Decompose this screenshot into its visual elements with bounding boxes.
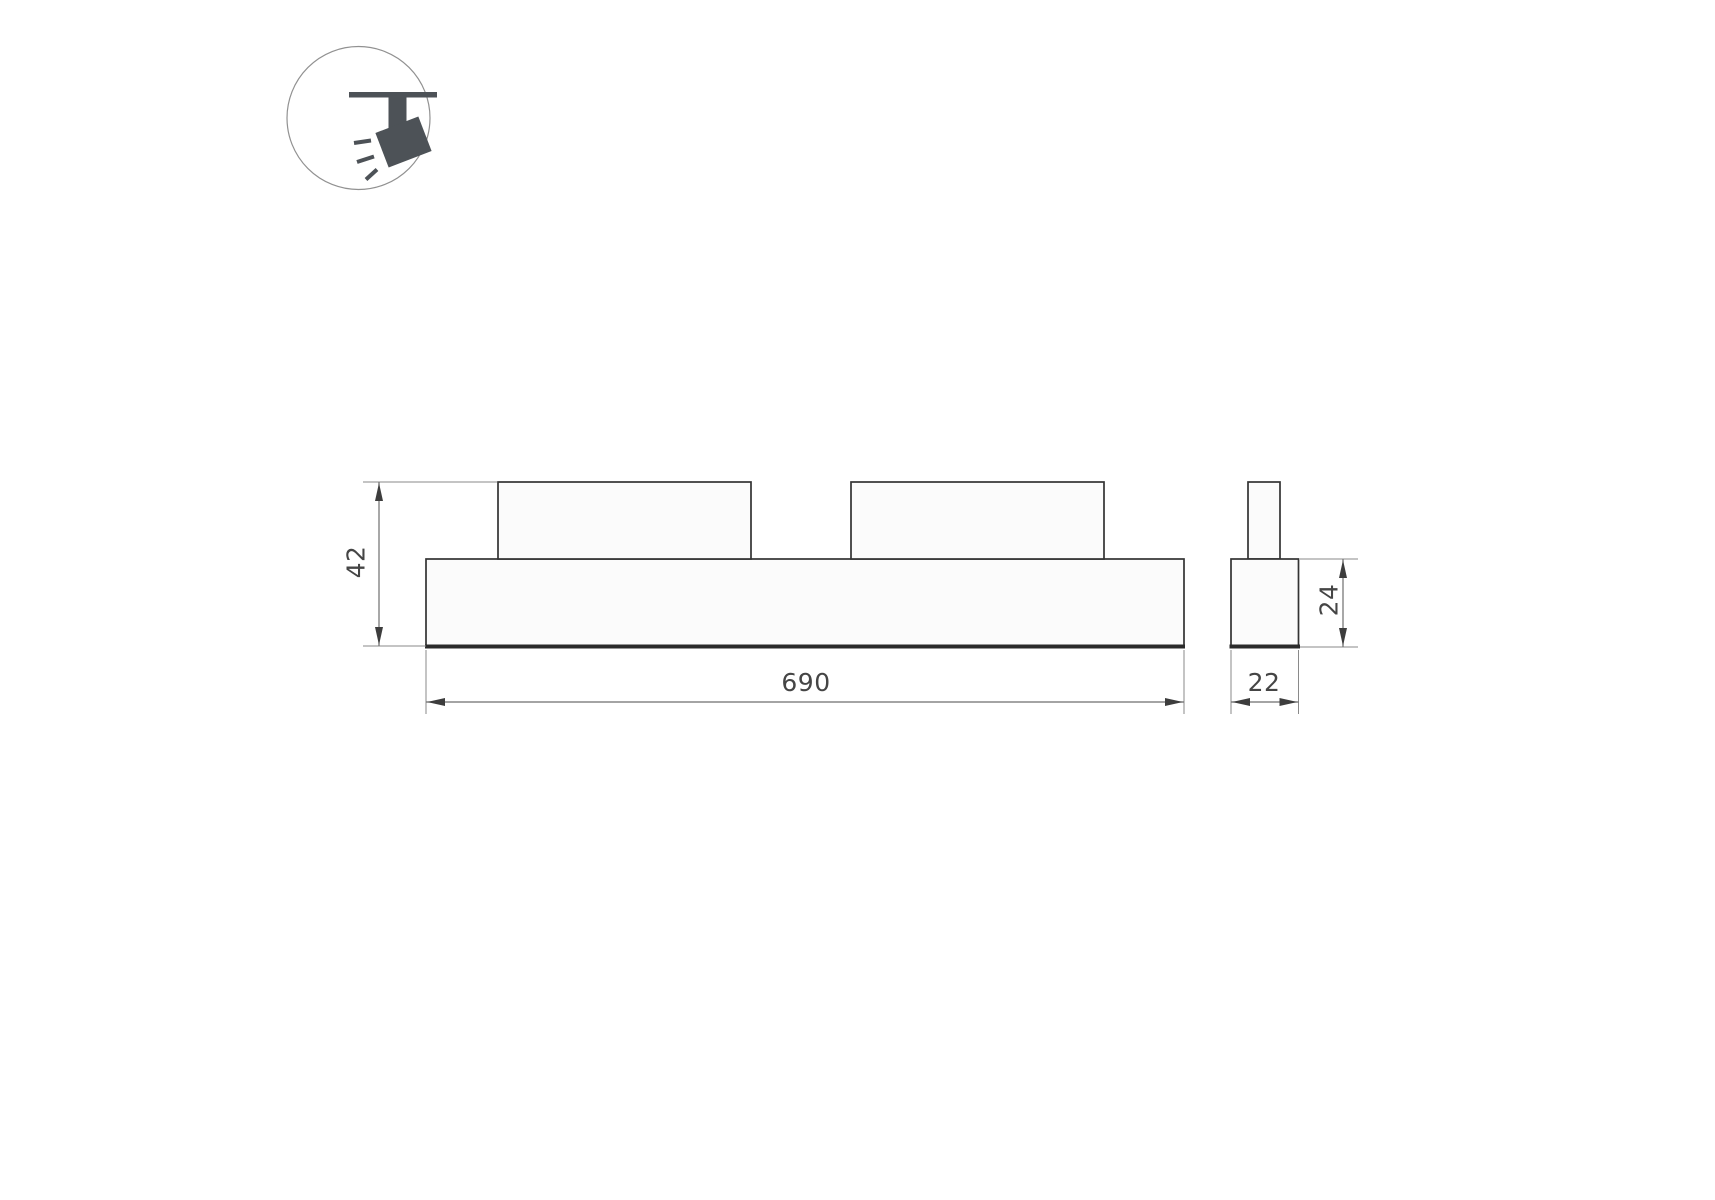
dimension-front-width: 690: [426, 650, 1184, 714]
arrowhead-right-icon: [1165, 698, 1183, 706]
side-view: [1230, 482, 1301, 647]
arrowhead-up-icon: [1339, 560, 1347, 578]
arrowhead-right-icon: [1280, 698, 1298, 706]
side-stem: [1248, 482, 1280, 559]
front-view: [425, 482, 1185, 647]
side-body-profile: [1231, 559, 1299, 647]
arrowhead-down-icon: [1339, 628, 1347, 646]
mount-type-badge: [287, 47, 437, 190]
light-ray-icon: [354, 141, 371, 144]
ceiling-track-spotlight-icon: [375, 116, 431, 167]
light-ray-icon: [366, 170, 377, 180]
arrowhead-down-icon: [375, 627, 383, 645]
front-body-profile: [426, 559, 1184, 646]
dimension-side-width: 22: [1231, 650, 1299, 714]
arrowhead-left-icon: [1232, 698, 1250, 706]
side-width-label: 22: [1248, 668, 1281, 697]
light-ray-icon: [357, 157, 374, 163]
front-width-label: 690: [781, 668, 830, 697]
badge-circle: [287, 47, 430, 190]
front-height-label: 42: [342, 546, 371, 579]
side-height-label: 24: [1315, 584, 1344, 617]
ceiling-line: [349, 92, 437, 98]
arrowhead-up-icon: [375, 483, 383, 501]
front-raised-box-2: [851, 482, 1104, 559]
dimension-side-height: 24: [1300, 559, 1358, 647]
arrowhead-left-icon: [427, 698, 445, 706]
luminaire-dimension-drawing: 42 690 24 22: [0, 0, 1715, 1200]
technical-drawing-canvas: 42 690 24 22: [0, 0, 1715, 1200]
front-raised-box-1: [498, 482, 751, 559]
